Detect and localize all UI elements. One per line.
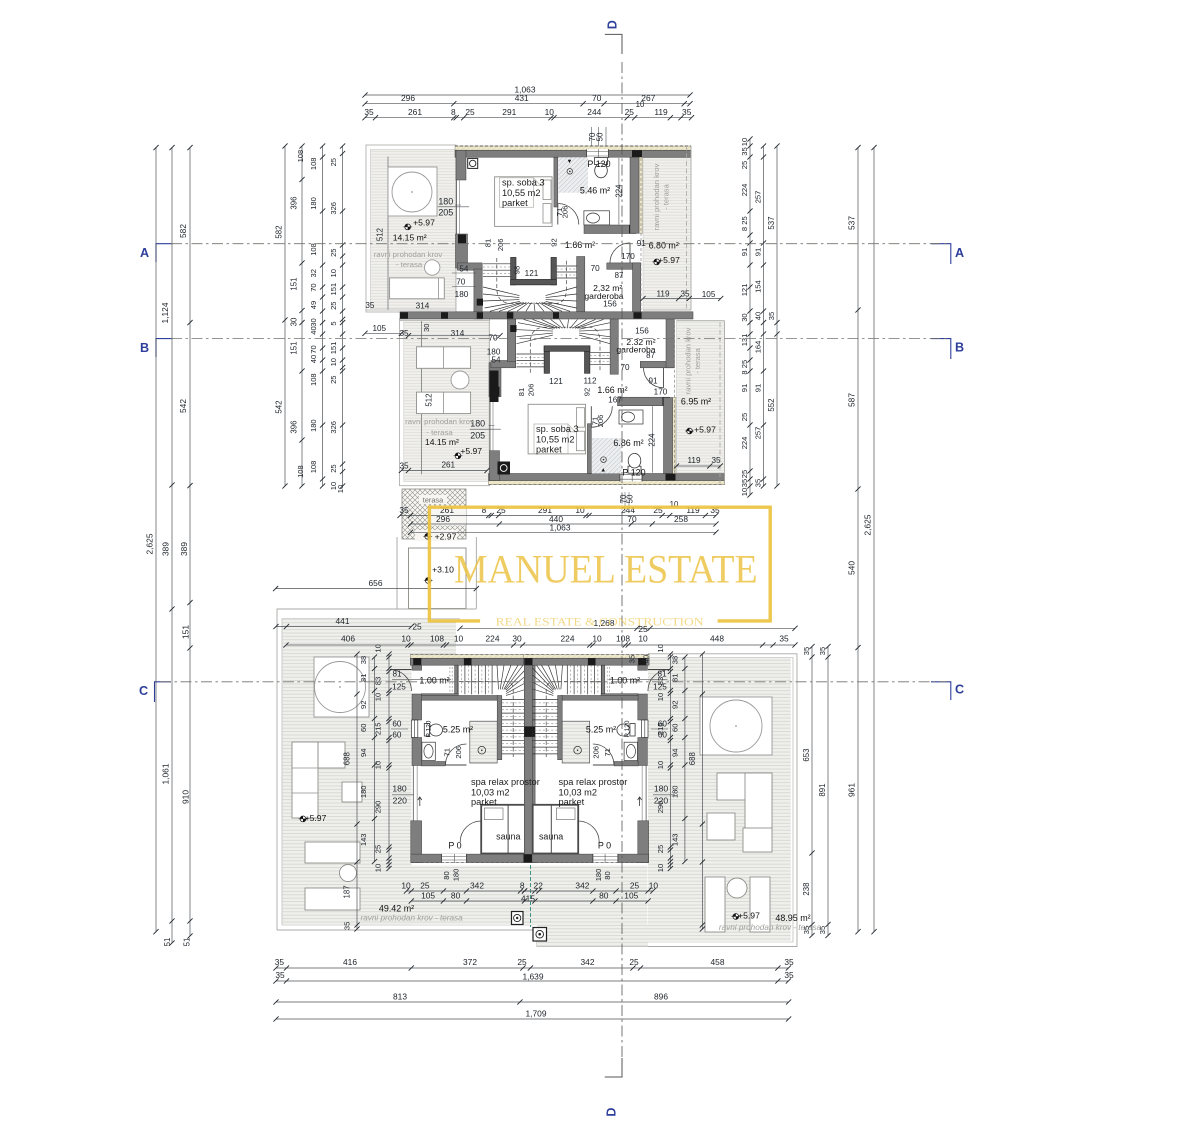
svg-text:314: 314 bbox=[416, 301, 430, 310]
svg-text:224: 224 bbox=[647, 433, 656, 447]
svg-text:180: 180 bbox=[438, 196, 453, 206]
svg-text:60: 60 bbox=[359, 724, 368, 732]
svg-text:372: 372 bbox=[463, 957, 477, 967]
svg-text:38: 38 bbox=[670, 656, 679, 664]
svg-text:30: 30 bbox=[290, 317, 299, 326]
svg-text:389: 389 bbox=[179, 542, 189, 556]
svg-text:587: 587 bbox=[847, 393, 857, 407]
svg-text:60: 60 bbox=[392, 731, 402, 740]
svg-text:1,709: 1,709 bbox=[526, 1008, 547, 1018]
svg-text:125: 125 bbox=[392, 683, 406, 692]
svg-text:151: 151 bbox=[290, 277, 299, 290]
svg-text:108: 108 bbox=[296, 465, 305, 478]
svg-text:- terasa: - terasa bbox=[661, 183, 670, 209]
svg-text:180: 180 bbox=[392, 783, 407, 793]
svg-text:121: 121 bbox=[525, 269, 539, 278]
svg-text:35: 35 bbox=[802, 647, 811, 655]
svg-text:416: 416 bbox=[343, 957, 357, 967]
svg-text:ravni prohodan krov: ravni prohodan krov bbox=[374, 250, 443, 259]
svg-text:10: 10 bbox=[329, 269, 338, 277]
svg-text:+5.97: +5.97 bbox=[694, 425, 716, 435]
svg-text:- terasa: - terasa bbox=[396, 260, 423, 269]
svg-text:542: 542 bbox=[275, 400, 284, 413]
svg-text:119: 119 bbox=[687, 456, 700, 465]
svg-text:35: 35 bbox=[365, 301, 375, 310]
svg-text:342: 342 bbox=[575, 881, 589, 891]
svg-text:14.15 m²: 14.15 m² bbox=[425, 437, 459, 447]
svg-text:206: 206 bbox=[496, 239, 505, 252]
svg-text:D: D bbox=[605, 1107, 619, 1116]
svg-text:30: 30 bbox=[512, 634, 522, 644]
svg-text:P 120: P 120 bbox=[425, 720, 432, 737]
svg-text:25: 25 bbox=[517, 957, 527, 967]
svg-text:8: 8 bbox=[740, 227, 749, 231]
svg-text:582: 582 bbox=[178, 224, 188, 238]
svg-text:205: 205 bbox=[438, 208, 453, 218]
svg-text:70: 70 bbox=[592, 93, 602, 103]
svg-text:154: 154 bbox=[753, 280, 762, 293]
svg-text:108: 108 bbox=[309, 461, 318, 474]
svg-text:261: 261 bbox=[441, 461, 455, 470]
svg-text:70: 70 bbox=[309, 283, 318, 291]
svg-text:81: 81 bbox=[359, 674, 368, 682]
svg-text:51: 51 bbox=[183, 938, 192, 947]
svg-text:ravni prohodan krov: ravni prohodan krov bbox=[405, 417, 474, 426]
svg-text:91: 91 bbox=[740, 248, 749, 256]
svg-text:35: 35 bbox=[818, 647, 827, 655]
svg-text:P 120: P 120 bbox=[622, 468, 645, 478]
svg-text:2,625: 2,625 bbox=[145, 533, 155, 554]
svg-text:sp. soba 3: sp. soba 3 bbox=[536, 424, 579, 434]
svg-text:48.95 m²: 48.95 m² bbox=[775, 913, 810, 923]
svg-text:206: 206 bbox=[596, 415, 605, 428]
svg-text:389: 389 bbox=[161, 542, 171, 556]
svg-text:25: 25 bbox=[329, 301, 338, 309]
svg-text:290: 290 bbox=[656, 801, 665, 814]
svg-text:35: 35 bbox=[802, 926, 811, 934]
svg-text:30: 30 bbox=[309, 318, 318, 326]
svg-text:35: 35 bbox=[779, 634, 789, 644]
svg-text:25: 25 bbox=[740, 360, 749, 368]
svg-text:180: 180 bbox=[670, 786, 679, 799]
svg-text:+5.97: +5.97 bbox=[658, 255, 680, 265]
svg-text:35: 35 bbox=[767, 312, 776, 320]
svg-text:+5.97: +5.97 bbox=[305, 813, 327, 823]
svg-text:143: 143 bbox=[359, 834, 368, 847]
svg-text:5.25 m²: 5.25 m² bbox=[443, 725, 473, 735]
svg-text:49.42 m²: 49.42 m² bbox=[379, 904, 414, 914]
svg-text:156: 156 bbox=[635, 327, 649, 336]
svg-text:50: 50 bbox=[595, 132, 604, 141]
svg-text:257: 257 bbox=[753, 191, 762, 204]
svg-text:238: 238 bbox=[802, 882, 811, 896]
svg-text:8: 8 bbox=[451, 107, 456, 117]
svg-text:spa relax prostor: spa relax prostor bbox=[471, 777, 540, 787]
svg-text:396: 396 bbox=[290, 420, 299, 434]
svg-text:5.46 m²: 5.46 m² bbox=[580, 186, 610, 196]
svg-text:92: 92 bbox=[583, 388, 592, 396]
svg-text:10,55 m2: 10,55 m2 bbox=[502, 188, 541, 198]
svg-text:688: 688 bbox=[343, 752, 352, 766]
svg-text:10: 10 bbox=[656, 693, 665, 701]
svg-text:448: 448 bbox=[710, 634, 724, 644]
svg-text:40: 40 bbox=[642, 655, 651, 663]
svg-text:688: 688 bbox=[688, 752, 697, 766]
svg-text:170: 170 bbox=[621, 252, 635, 261]
svg-text:sauna: sauna bbox=[496, 831, 520, 841]
svg-text:512: 512 bbox=[425, 393, 434, 406]
svg-text:552: 552 bbox=[767, 398, 776, 411]
svg-text:8: 8 bbox=[520, 881, 525, 891]
svg-text:291: 291 bbox=[502, 107, 516, 117]
svg-text:105: 105 bbox=[372, 324, 386, 333]
svg-text:431: 431 bbox=[515, 93, 529, 103]
svg-text:1.00 m²: 1.00 m² bbox=[610, 675, 640, 685]
svg-text:10: 10 bbox=[374, 864, 383, 872]
svg-text:1,124: 1,124 bbox=[160, 302, 170, 323]
svg-text:25: 25 bbox=[329, 248, 338, 256]
svg-text:92: 92 bbox=[670, 701, 679, 709]
svg-text:25: 25 bbox=[656, 845, 665, 853]
svg-text:108: 108 bbox=[309, 373, 318, 386]
svg-text:35: 35 bbox=[343, 922, 352, 930]
svg-text:119: 119 bbox=[656, 290, 669, 299]
svg-text:187: 187 bbox=[343, 885, 352, 898]
svg-text:40: 40 bbox=[309, 355, 318, 363]
svg-text:parket: parket bbox=[471, 797, 497, 807]
svg-text:10: 10 bbox=[636, 100, 645, 109]
svg-text:108: 108 bbox=[430, 634, 444, 644]
svg-text:10: 10 bbox=[656, 761, 665, 769]
svg-text:10: 10 bbox=[329, 358, 338, 366]
svg-text:215: 215 bbox=[656, 723, 665, 736]
svg-text:151: 151 bbox=[181, 625, 191, 639]
svg-text:10: 10 bbox=[656, 644, 665, 652]
svg-text:sp. soba 3: sp. soba 3 bbox=[502, 178, 545, 188]
svg-text:10: 10 bbox=[649, 881, 659, 891]
svg-text:1.00 m²: 1.00 m² bbox=[419, 675, 449, 685]
svg-text:+5.97: +5.97 bbox=[460, 446, 482, 456]
svg-text:10: 10 bbox=[374, 693, 383, 701]
svg-text:P 0: P 0 bbox=[598, 840, 611, 850]
svg-text:206: 206 bbox=[527, 384, 536, 397]
svg-text:14.15 m²: 14.15 m² bbox=[393, 232, 427, 242]
svg-text:REAL ESTATE & CONSTRUCTION: REAL ESTATE & CONSTRUCTION bbox=[496, 617, 705, 629]
svg-text:170: 170 bbox=[654, 388, 668, 397]
svg-text:parket: parket bbox=[502, 198, 528, 208]
svg-text:656: 656 bbox=[369, 578, 383, 588]
svg-text:224: 224 bbox=[740, 184, 749, 197]
svg-text:1,639: 1,639 bbox=[523, 972, 544, 982]
svg-text:25: 25 bbox=[465, 107, 475, 117]
svg-text:parket: parket bbox=[559, 797, 585, 807]
svg-text:35: 35 bbox=[399, 505, 409, 515]
svg-text:206: 206 bbox=[592, 746, 601, 759]
svg-text:258: 258 bbox=[674, 514, 688, 524]
svg-text:98: 98 bbox=[513, 266, 522, 274]
svg-text:6.95 m²: 6.95 m² bbox=[681, 397, 711, 407]
svg-text:10,03 m2: 10,03 m2 bbox=[559, 787, 598, 797]
svg-text:121: 121 bbox=[740, 284, 749, 297]
svg-text:80: 80 bbox=[599, 891, 609, 901]
svg-text:+2.97: +2.97 bbox=[435, 532, 457, 542]
svg-text:108: 108 bbox=[309, 243, 318, 256]
svg-text:25: 25 bbox=[625, 107, 635, 117]
svg-text:87: 87 bbox=[646, 351, 655, 360]
svg-text:180: 180 bbox=[359, 786, 368, 799]
svg-text:180: 180 bbox=[654, 783, 669, 793]
svg-text:458: 458 bbox=[711, 957, 725, 967]
svg-text:537: 537 bbox=[767, 216, 776, 229]
svg-text:261: 261 bbox=[408, 107, 422, 117]
svg-text:119: 119 bbox=[654, 107, 668, 117]
svg-text:5: 5 bbox=[329, 321, 338, 325]
svg-text:10: 10 bbox=[592, 634, 602, 644]
svg-text:60: 60 bbox=[670, 724, 679, 732]
svg-text:70: 70 bbox=[591, 264, 601, 273]
svg-text:80: 80 bbox=[603, 871, 612, 879]
svg-text:1,063: 1,063 bbox=[550, 522, 571, 532]
svg-text:105: 105 bbox=[624, 891, 638, 901]
svg-text:80: 80 bbox=[451, 891, 461, 901]
svg-text:2,625: 2,625 bbox=[863, 514, 873, 535]
svg-text:83: 83 bbox=[374, 677, 383, 685]
svg-text:164: 164 bbox=[753, 341, 762, 354]
svg-text:70: 70 bbox=[456, 278, 466, 287]
svg-text:83: 83 bbox=[656, 677, 665, 685]
svg-text:91: 91 bbox=[740, 384, 749, 392]
svg-text:81: 81 bbox=[484, 239, 493, 247]
svg-text:6.80 m²: 6.80 m² bbox=[649, 241, 679, 251]
svg-text:25: 25 bbox=[412, 622, 422, 632]
svg-text:spa relax prostor: spa relax prostor bbox=[559, 777, 628, 787]
svg-text:35: 35 bbox=[364, 107, 374, 117]
svg-text:131: 131 bbox=[740, 334, 749, 347]
svg-text:25: 25 bbox=[374, 845, 383, 853]
svg-text:92: 92 bbox=[550, 238, 559, 246]
svg-text:108: 108 bbox=[309, 158, 318, 171]
svg-text:512: 512 bbox=[375, 228, 384, 241]
svg-text:220: 220 bbox=[393, 795, 408, 805]
svg-text:35: 35 bbox=[275, 970, 285, 980]
svg-text:71: 71 bbox=[603, 748, 612, 756]
svg-text:71: 71 bbox=[442, 748, 451, 756]
svg-text:296: 296 bbox=[401, 93, 415, 103]
svg-text:22: 22 bbox=[534, 881, 544, 891]
svg-text:▲: ▲ bbox=[600, 468, 606, 474]
svg-text:25: 25 bbox=[329, 375, 338, 383]
svg-text:151: 151 bbox=[329, 283, 338, 296]
svg-text:537: 537 bbox=[847, 216, 857, 230]
svg-text:342: 342 bbox=[581, 957, 595, 967]
svg-text:224: 224 bbox=[561, 634, 575, 644]
svg-text:91: 91 bbox=[753, 384, 762, 392]
svg-text:10: 10 bbox=[656, 864, 665, 872]
svg-text:215: 215 bbox=[374, 723, 383, 736]
svg-text:30: 30 bbox=[422, 323, 431, 331]
svg-text:653: 653 bbox=[802, 748, 811, 762]
svg-text:206: 206 bbox=[560, 206, 569, 219]
svg-text:406: 406 bbox=[341, 634, 355, 644]
svg-text:6.86 m²: 6.86 m² bbox=[613, 438, 643, 448]
svg-text:- terasa: - terasa bbox=[693, 347, 702, 373]
svg-text:sauna: sauna bbox=[539, 831, 563, 841]
svg-text:70: 70 bbox=[627, 514, 637, 524]
svg-text:151: 151 bbox=[290, 341, 299, 354]
svg-text:B: B bbox=[955, 341, 964, 355]
svg-text:38: 38 bbox=[359, 656, 368, 664]
svg-text:P 0: P 0 bbox=[448, 840, 461, 850]
svg-text:25: 25 bbox=[740, 216, 749, 224]
svg-text:MANUEL ESTATE: MANUEL ESTATE bbox=[454, 547, 758, 592]
svg-text:A: A bbox=[955, 246, 964, 260]
svg-text:180: 180 bbox=[451, 869, 460, 882]
svg-text:180: 180 bbox=[455, 290, 469, 299]
svg-text:244: 244 bbox=[587, 107, 601, 117]
svg-text:542: 542 bbox=[178, 399, 188, 413]
svg-text:224: 224 bbox=[740, 437, 749, 450]
svg-text:25: 25 bbox=[629, 957, 639, 967]
svg-text:A: A bbox=[140, 246, 149, 260]
svg-text:92: 92 bbox=[359, 701, 368, 709]
svg-text:30: 30 bbox=[740, 313, 749, 321]
svg-text:81: 81 bbox=[392, 670, 402, 679]
svg-text:+5.97: +5.97 bbox=[738, 911, 760, 921]
svg-text:35: 35 bbox=[818, 926, 827, 934]
svg-text:P 120: P 120 bbox=[624, 720, 631, 737]
svg-text:35: 35 bbox=[628, 655, 637, 663]
svg-text:296: 296 bbox=[436, 514, 450, 524]
svg-text:10: 10 bbox=[401, 634, 411, 644]
svg-text:terasa: terasa bbox=[423, 495, 444, 504]
svg-text:257: 257 bbox=[753, 427, 762, 440]
svg-text:10: 10 bbox=[374, 761, 383, 769]
svg-text:1.66 m²: 1.66 m² bbox=[565, 240, 595, 250]
svg-text:10: 10 bbox=[638, 634, 648, 644]
svg-text:326: 326 bbox=[329, 202, 338, 215]
svg-text:- terasa: - terasa bbox=[426, 428, 453, 437]
svg-text:342: 342 bbox=[470, 881, 484, 891]
svg-text:8: 8 bbox=[740, 370, 749, 374]
svg-text:+3.10: +3.10 bbox=[432, 564, 454, 574]
svg-text:206: 206 bbox=[454, 746, 463, 759]
svg-text:891: 891 bbox=[818, 783, 827, 796]
svg-text:35: 35 bbox=[399, 461, 409, 470]
svg-text:94: 94 bbox=[670, 749, 679, 757]
svg-text:540: 540 bbox=[847, 561, 857, 575]
svg-text:ravni prohodan krov: ravni prohodan krov bbox=[683, 327, 692, 394]
svg-text:10: 10 bbox=[336, 485, 345, 493]
svg-text:180: 180 bbox=[309, 197, 318, 210]
svg-text:32: 32 bbox=[309, 269, 318, 277]
svg-text:70: 70 bbox=[309, 345, 318, 353]
svg-text:108: 108 bbox=[616, 634, 630, 644]
svg-text:35: 35 bbox=[740, 147, 749, 155]
svg-text:10: 10 bbox=[545, 107, 555, 117]
svg-text:108: 108 bbox=[296, 150, 305, 163]
svg-text:10: 10 bbox=[374, 644, 383, 652]
svg-text:582: 582 bbox=[275, 225, 284, 238]
svg-text:25: 25 bbox=[740, 161, 749, 169]
svg-text:35: 35 bbox=[682, 107, 692, 117]
svg-text:35: 35 bbox=[680, 290, 690, 299]
svg-text:91: 91 bbox=[648, 377, 658, 386]
svg-text:10,03 m2: 10,03 m2 bbox=[471, 787, 510, 797]
svg-text:C: C bbox=[955, 683, 964, 697]
svg-text:ravni prohodan krov: ravni prohodan krov bbox=[652, 163, 661, 230]
svg-text:54: 54 bbox=[491, 356, 501, 365]
svg-text:54: 54 bbox=[459, 264, 469, 273]
svg-text:parket: parket bbox=[536, 445, 562, 455]
svg-text:P 120: P 120 bbox=[587, 159, 610, 169]
svg-text:396: 396 bbox=[290, 196, 299, 210]
svg-text:80: 80 bbox=[442, 871, 451, 879]
svg-text:50: 50 bbox=[625, 494, 634, 503]
svg-text:105: 105 bbox=[421, 891, 435, 901]
svg-text:961: 961 bbox=[847, 783, 857, 797]
svg-text:81: 81 bbox=[670, 674, 679, 682]
svg-text:60: 60 bbox=[392, 719, 402, 728]
svg-text:25: 25 bbox=[329, 464, 338, 472]
svg-text:5.25 m²: 5.25 m² bbox=[586, 725, 616, 735]
svg-text:224: 224 bbox=[486, 634, 500, 644]
svg-text:105: 105 bbox=[702, 290, 716, 299]
svg-text:121: 121 bbox=[549, 377, 563, 386]
svg-text:1,061: 1,061 bbox=[161, 763, 171, 784]
svg-text:ravni prohodan krov - terasa: ravni prohodan krov - terasa bbox=[360, 914, 463, 923]
svg-text:326: 326 bbox=[329, 421, 338, 434]
svg-text:143: 143 bbox=[670, 834, 679, 847]
svg-text:B: B bbox=[140, 341, 149, 355]
svg-text:1.66 m²: 1.66 m² bbox=[597, 385, 627, 395]
svg-text:205: 205 bbox=[470, 430, 485, 440]
svg-text:35: 35 bbox=[753, 479, 762, 487]
svg-text:10: 10 bbox=[740, 488, 749, 496]
svg-text:25: 25 bbox=[420, 881, 430, 891]
svg-text:25: 25 bbox=[329, 158, 338, 166]
svg-text:+5.97: +5.97 bbox=[413, 218, 435, 228]
svg-text:51: 51 bbox=[163, 938, 172, 947]
svg-text:25: 25 bbox=[740, 413, 749, 421]
svg-text:25: 25 bbox=[630, 881, 640, 891]
svg-text:25: 25 bbox=[740, 470, 749, 478]
svg-text:10: 10 bbox=[401, 881, 411, 891]
svg-text:D: D bbox=[606, 20, 620, 29]
svg-text:156: 156 bbox=[603, 300, 617, 309]
svg-text:▼: ▼ bbox=[567, 159, 573, 165]
svg-text:40: 40 bbox=[753, 312, 762, 320]
svg-text:151: 151 bbox=[329, 342, 338, 355]
svg-text:180: 180 bbox=[309, 419, 318, 432]
svg-text:896: 896 bbox=[654, 991, 668, 1001]
svg-text:94: 94 bbox=[359, 749, 368, 757]
svg-text:10,55 m2: 10,55 m2 bbox=[536, 435, 575, 445]
svg-text:10: 10 bbox=[740, 138, 749, 146]
svg-text:35: 35 bbox=[784, 970, 794, 980]
svg-text:35: 35 bbox=[740, 479, 749, 487]
svg-text:C: C bbox=[139, 684, 148, 698]
svg-text:35: 35 bbox=[784, 957, 794, 967]
svg-text:910: 910 bbox=[181, 790, 191, 804]
svg-text:112: 112 bbox=[583, 377, 596, 386]
svg-text:314: 314 bbox=[451, 329, 465, 338]
svg-text:813: 813 bbox=[393, 991, 407, 1001]
svg-text:441: 441 bbox=[336, 616, 350, 626]
svg-text:49: 49 bbox=[309, 301, 318, 309]
svg-text:35: 35 bbox=[711, 456, 721, 465]
svg-text:290: 290 bbox=[374, 801, 383, 814]
svg-text:167: 167 bbox=[608, 396, 622, 405]
